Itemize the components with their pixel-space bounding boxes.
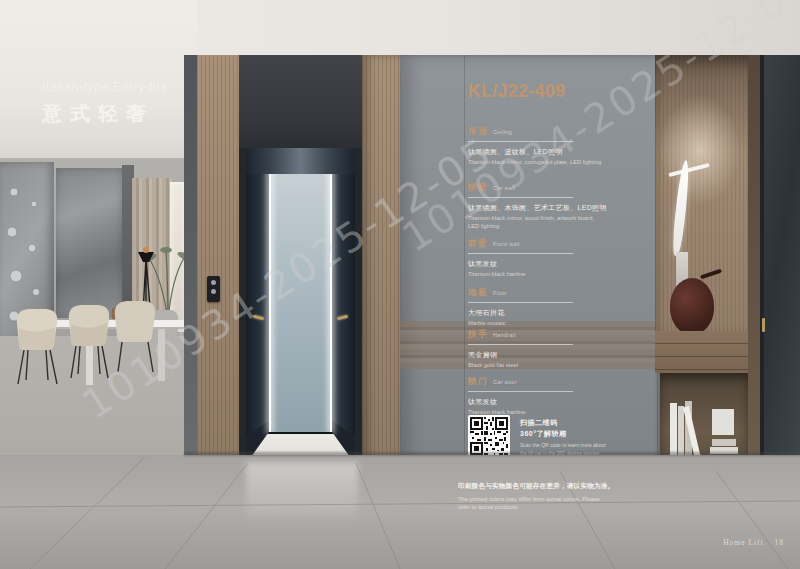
divider	[468, 141, 573, 142]
section-title-en: Car wall	[493, 185, 515, 191]
wood-column	[748, 55, 760, 469]
side-wall-return	[184, 55, 197, 467]
qr-code	[468, 415, 510, 457]
section-desc-zh: 大理石拼花	[468, 308, 623, 318]
led-strip-left	[269, 162, 271, 432]
divider	[468, 344, 573, 345]
floor-grout-lines	[0, 455, 800, 569]
elevator-header-panel	[239, 55, 362, 148]
qr-block: 扫描二维码 360°了解轿厢 Scan the QR code to learn…	[468, 415, 630, 457]
section-title-en: Handrail	[493, 332, 516, 338]
section-title-en: Ceiling	[493, 129, 512, 135]
section-title-zh: 前壁	[468, 238, 488, 248]
divider	[468, 391, 573, 392]
qr-caption-en-1: Scan the QR code to learn more about	[520, 442, 606, 448]
section-desc-en: Titanium black mirror, wood finish, artw…	[468, 215, 603, 231]
model-number: KL/J22-409	[468, 81, 565, 102]
spec-panel: KL/J22-409 吊顶Ceiling 钛黑镜面、波纹板、LED照明 Tita…	[400, 55, 660, 480]
section-desc-en: Titanium black hairline	[468, 271, 603, 279]
elevator-call-button[interactable]	[207, 276, 220, 302]
car-side-wall-right	[329, 148, 355, 436]
catalog-page: KL/J22-409 吊顶Ceiling 钛黑镜面、波纹板、LED照明 Tita…	[0, 0, 800, 569]
section-title-zh: 轿门	[468, 376, 488, 386]
section-title-zh: 吊顶	[468, 126, 488, 136]
spec-section-floor: 地板Floor 大理石拼花 Marble mosaic	[468, 281, 623, 328]
disclaimer: 印刷颜色与实物颜色可能存在差异，请以实物为准。 The printed colo…	[458, 482, 633, 511]
car-mirror-ceiling	[246, 148, 355, 174]
series-title-en: Italian-type Entry-lux	[42, 80, 167, 94]
qr-caption-zh-2: 360°了解轿厢	[520, 429, 630, 440]
divider	[468, 197, 573, 198]
section-title-zh: 扶手	[468, 329, 488, 339]
section-desc-zh: 钛黑镜面、波纹板、LED照明	[468, 147, 623, 157]
section-title-zh: 轿壁	[468, 182, 488, 192]
series-title-zh: 意式轻奢	[42, 100, 154, 127]
door-handle	[762, 318, 765, 332]
section-desc-en: Black gold flat steel	[468, 362, 603, 370]
wood-console	[655, 331, 759, 373]
glass-door	[760, 55, 800, 485]
spec-section-ceiling: 吊顶Ceiling 钛黑镜面、波纹板、LED照明 Titanium black …	[468, 120, 623, 167]
section-title-en: Front wall	[493, 241, 520, 247]
spec-section-front-wall: 前壁Front wall 钛黑发纹 Titanium black hairlin…	[468, 232, 623, 279]
spec-section-car-wall: 轿壁Car wall 钛黑镜面、木饰面、艺术工艺板、LED照明 Titanium…	[468, 176, 623, 231]
wood-pillar-right	[362, 55, 400, 468]
section-title-en: Car door	[493, 379, 517, 385]
section-desc-en: Titanium black mirror, corrugated plate,…	[468, 159, 603, 167]
divider	[468, 302, 573, 303]
footer-page-number: 18	[775, 538, 785, 547]
disclaimer-zh: 印刷颜色与实物颜色可能存在差异，请以实物为准。	[458, 482, 633, 491]
qr-caption-zh-1: 扫描二维码	[520, 418, 630, 429]
footer-label: Home Lift	[723, 538, 763, 547]
qr-code-icon	[470, 417, 508, 455]
led-strip-right	[330, 162, 332, 432]
dining-set-illustration	[0, 140, 200, 470]
section-desc-zh: 钛黑发纹	[468, 259, 623, 269]
spec-section-handrail: 扶手Handrail 黑金扁钢 Black gold flat steel	[468, 323, 623, 370]
section-desc-zh: 黑金扁钢	[468, 350, 623, 360]
page-footer: Home Lift 18	[715, 538, 784, 547]
section-desc-zh: 钛黑发纹	[468, 397, 623, 407]
elevator-car-interior	[246, 148, 355, 462]
spec-section-car-door: 轿门Car door 钛黑发纹 Titanium black hairline	[468, 370, 623, 417]
wood-pillar-left	[197, 55, 239, 468]
divider	[468, 253, 573, 254]
section-title-zh: 地板	[468, 287, 488, 297]
car-back-wall	[270, 162, 331, 432]
disclaimer-en: The printed colors may differ from actua…	[458, 495, 608, 511]
section-desc-zh: 钛黑镜面、木饰面、艺术工艺板、LED照明	[468, 203, 623, 213]
decor-vase	[670, 278, 714, 334]
niche-spotlight	[660, 95, 740, 205]
panel-seam	[464, 55, 465, 480]
section-title-en: Floor	[493, 290, 507, 296]
